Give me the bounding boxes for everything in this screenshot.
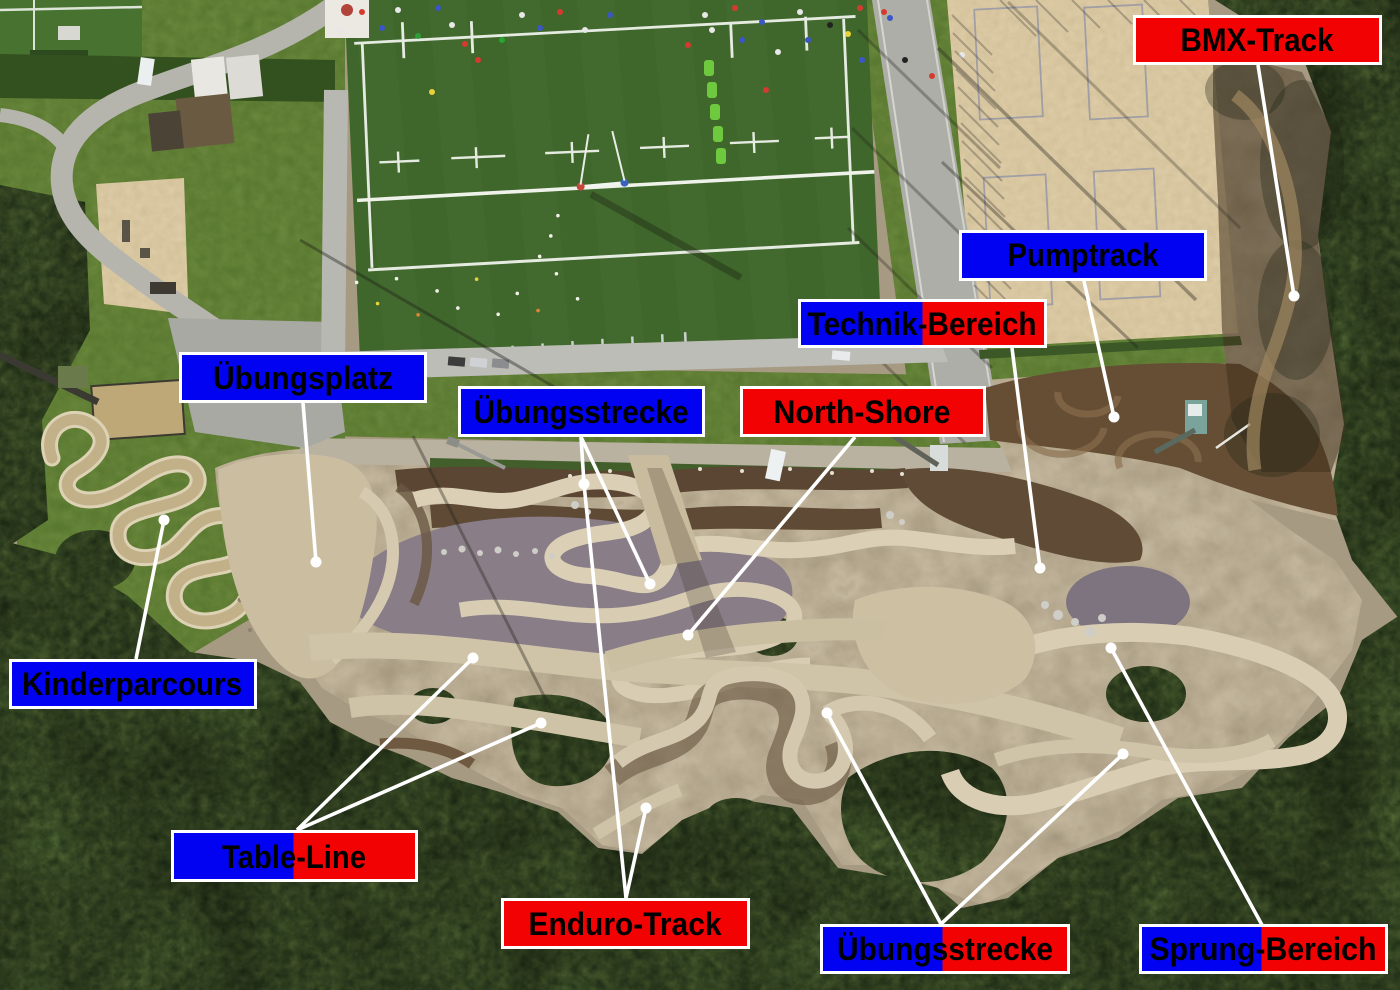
svg-text:North-Shore: North-Shore <box>774 394 951 430</box>
svg-text:Enduro-Track: Enduro-Track <box>529 906 722 942</box>
svg-text:Table-Line: Table-Line <box>222 839 366 875</box>
svg-text:BMX-Track: BMX-Track <box>1181 22 1334 58</box>
svg-text:Technik-Bereich: Technik-Bereich <box>808 306 1037 342</box>
svg-text:Übungsstrecke: Übungsstrecke <box>474 394 689 430</box>
svg-text:Übungsplatz: Übungsplatz <box>213 360 393 396</box>
svg-text:Übungsstrecke: Übungsstrecke <box>837 931 1053 967</box>
svg-text:Pumptrack: Pumptrack <box>1008 237 1159 273</box>
svg-text:Kinderparcours: Kinderparcours <box>22 666 242 702</box>
svg-text:Sprung-Bereich: Sprung-Bereich <box>1150 931 1377 967</box>
